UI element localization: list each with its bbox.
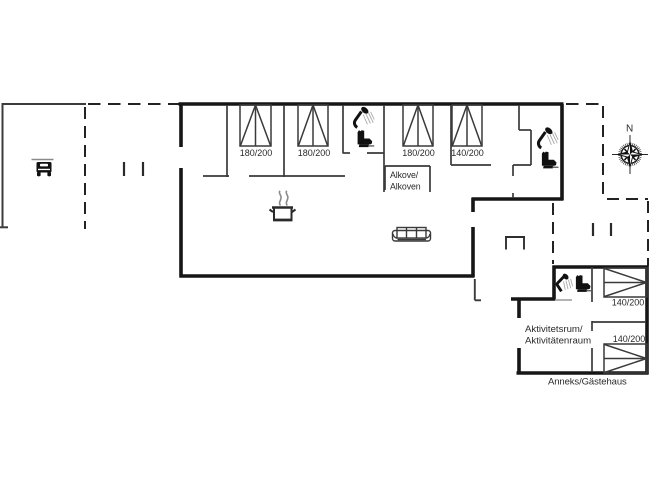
svg-text:180/200: 180/200 bbox=[402, 148, 435, 158]
svg-text:Alkoven: Alkoven bbox=[390, 182, 421, 192]
svg-text:140/200: 140/200 bbox=[451, 148, 484, 158]
svg-text:Alkove/: Alkove/ bbox=[390, 170, 419, 180]
svg-text:180/200: 180/200 bbox=[240, 148, 273, 158]
svg-text:Anneks/Gästehaus: Anneks/Gästehaus bbox=[548, 377, 627, 388]
svg-text:140/200: 140/200 bbox=[613, 334, 646, 344]
svg-text:180/200: 180/200 bbox=[298, 148, 331, 158]
svg-text:140/200: 140/200 bbox=[612, 298, 645, 308]
svg-text:Aktivitätenraum: Aktivitätenraum bbox=[525, 336, 591, 347]
svg-text:N: N bbox=[626, 124, 633, 135]
svg-text:Aktivitetsrum/: Aktivitetsrum/ bbox=[525, 324, 583, 335]
